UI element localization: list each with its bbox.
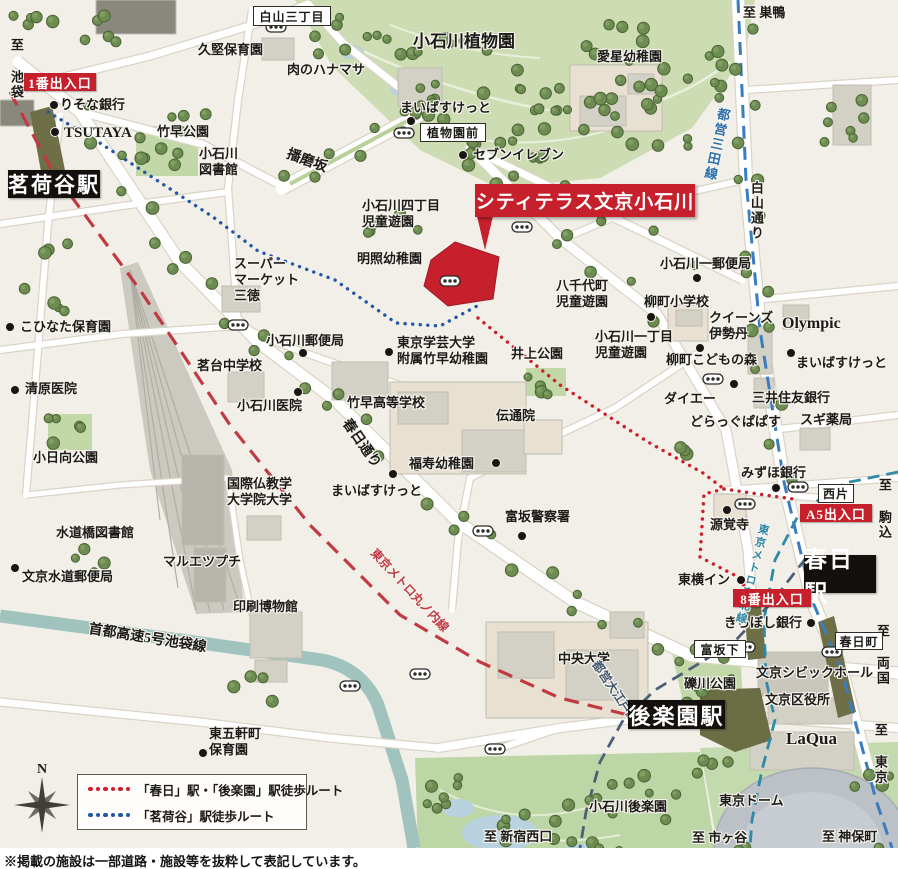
poi-dot (10, 385, 20, 395)
legend-box: 「春日」駅・「後楽園」駅徒歩ルート「茗荷谷」駅徒歩ルート (77, 774, 307, 830)
poi-label: 東五軒町 保育園 (209, 726, 261, 758)
compass-n: N (37, 762, 47, 777)
poi-dot (722, 505, 732, 515)
poi-label: 久堅保育園 (198, 42, 263, 58)
poi-label: 国際仏教学 大学院大学 (227, 476, 292, 508)
poi-label: 清原医院 (25, 381, 77, 397)
poi-dot (49, 100, 59, 110)
poi-label: 小石川一郵便局 (660, 256, 751, 272)
poi-dot (50, 127, 60, 137)
poi-label: 小石川医院 (237, 398, 302, 414)
poi-label: こひなた保育園 (20, 319, 111, 335)
edge-label: 至 東京 (872, 723, 888, 785)
poi-label: 文京シビックホール (756, 665, 873, 681)
poi-label: 東京ドーム (719, 793, 784, 809)
poi-label: どらっぐぱぱす (690, 414, 781, 430)
poi-dot (5, 322, 15, 332)
edge-label: 至 市ヶ谷 (692, 830, 747, 846)
poi-dot (298, 348, 308, 358)
poi-label: 小日向公園 (33, 450, 98, 466)
poi-label: 礫川公園 (684, 676, 736, 692)
poi-label: 文京水道郵便局 (22, 569, 113, 585)
bus-stop-sign: 白山三丁目 (253, 6, 331, 26)
poi-label: 水道橋図書館 (56, 525, 134, 541)
map-area: シティテラス文京小石川 「春日」駅・「後楽園」駅徒歩ルート「茗荷谷」駅徒歩ルート… (0, 0, 898, 848)
poi-label: みずほ銀行 (741, 465, 806, 481)
poi-label: マルエツプチ (163, 554, 241, 570)
poi-dot (384, 347, 394, 357)
poi-label: 文京区役所 (765, 692, 830, 708)
poi-label: 福寿幼稚園 (409, 456, 474, 472)
road-label: 白山通り (748, 181, 764, 241)
poi-dot (517, 531, 527, 541)
road-label: 春日通り (338, 416, 384, 472)
poi-label: スギ薬局 (800, 412, 852, 428)
poi-label: 小石川四丁目 児童遊園 (362, 198, 440, 230)
poi-label: LaQua (786, 729, 837, 750)
poi-label: 伝通院 (496, 408, 535, 424)
station-label: 茗荷谷駅 (8, 170, 100, 198)
poi-dot (806, 618, 816, 628)
poi-label: まいばすけっと (400, 100, 491, 116)
legend-item: 「春日」駅・「後楽園」駅徒歩ルート (88, 780, 296, 799)
poi-label: 茗台中学校 (197, 358, 262, 374)
edge-label: 至 神保町 (822, 829, 877, 845)
road-label: 東京メトロ丸ノ内線 (367, 546, 451, 635)
exit-label: A5出入口 (800, 504, 872, 522)
bus-stop-sign: 春日町 (835, 632, 883, 650)
exit-label: 8番出入口 (733, 589, 811, 607)
poi-dot (198, 748, 208, 758)
poi-label: 柳町小学校 (644, 294, 709, 310)
poi-label: りそな銀行 (60, 97, 125, 113)
poi-dot (406, 116, 416, 126)
compass: N (0, 757, 85, 848)
poi-label: 小石川郵便局 (266, 333, 344, 349)
poi-dot (491, 458, 501, 468)
poi-dot (458, 150, 468, 160)
edge-label: 至 巣鴨 (743, 5, 785, 21)
road-label: 播磨坂 (284, 146, 329, 176)
poi-dot (388, 469, 398, 479)
poi-label: Olympic (782, 314, 841, 334)
poi-label: 柳町こどもの森 (666, 352, 757, 368)
legend-route-swatch (88, 813, 130, 818)
poi-label: 明照幼稚園 (357, 251, 422, 267)
edge-label: 至 新宿西口 (484, 829, 552, 845)
footnote-text: ※掲載の施設は一部道路・施設等を抜粋して表記しています。 (4, 851, 366, 869)
poi-dot (695, 343, 705, 353)
poi-label: 竹早高等学校 (347, 395, 425, 411)
legend-route-swatch (88, 787, 130, 792)
bus-stop-sign: 富坂下 (694, 640, 746, 658)
station-label: 春日駅 (804, 555, 876, 593)
poi-label: 竹早公園 (157, 124, 209, 140)
poi-label: 小石川 図書館 (199, 146, 238, 178)
poi-dot (10, 563, 20, 573)
poi-label: クイーンズ 伊勢丹 (709, 310, 773, 342)
poi-label: 井上公園 (511, 346, 563, 362)
poi-label: TSUTAYA (64, 124, 132, 142)
poi-label: まいばすけっと (331, 483, 422, 499)
legend-label: 「茗荷谷」駅徒歩ルート (137, 806, 275, 825)
poi-label: 小石川後楽園 (589, 799, 667, 815)
poi-label: 東横イン (678, 572, 730, 588)
poi-dot (771, 483, 781, 493)
exit-label: 1番出入口 (24, 73, 96, 91)
legend-item: 「茗荷谷」駅徒歩ルート (88, 806, 296, 825)
road-label: 東京メトロ南北線 (732, 522, 770, 626)
station-label: 後楽園駅 (628, 700, 725, 729)
poi-label: 小石川一丁目 児童遊園 (595, 329, 673, 361)
bus-stop-sign: 植物園前 (420, 123, 486, 142)
bus-stop-sign: 西片 (818, 484, 854, 503)
poi-dot (692, 273, 702, 283)
poi-dot (786, 348, 796, 358)
poi-dot (729, 379, 739, 389)
poi-label: 富坂警察署 (505, 509, 570, 525)
poi-label: 東京学芸大学 附属竹早幼稚園 (397, 335, 488, 367)
map-screenshot: シティテラス文京小石川 「春日」駅・「後楽園」駅徒歩ルート「茗荷谷」駅徒歩ルート… (0, 0, 898, 869)
edge-label: 至 駒込 (876, 478, 892, 540)
road-label: 都営三田線 (700, 106, 731, 183)
poi-label: セブンイレブン (473, 147, 564, 163)
poi-label: スーパー マーケット 三徳 (234, 256, 299, 304)
poi-label: 小石川植物園 (413, 32, 515, 53)
legend-label: 「春日」駅・「後楽園」駅徒歩ルート (137, 780, 343, 799)
poi-label: まいばすけっと (796, 355, 887, 371)
poi-label: 三井住友銀行 (752, 390, 830, 406)
poi-label: 印刷博物館 (233, 599, 298, 615)
edge-label: 至 池袋 (8, 38, 24, 100)
poi-dot (646, 312, 656, 322)
poi-label: 八千代町 児童遊園 (556, 278, 608, 310)
road-label: 首都高速5号池袋線 (87, 621, 207, 656)
labels-layer: シティテラス文京小石川 「春日」駅・「後楽園」駅徒歩ルート「茗荷谷」駅徒歩ルート… (0, 0, 898, 848)
poi-label: 愛星幼稚園 (597, 49, 662, 65)
poi-label: 肉のハナマサ (287, 62, 365, 78)
poi-label: ダイエー (664, 391, 716, 407)
poi-dot (293, 387, 303, 397)
property-banner: シティテラス文京小石川 (475, 184, 695, 217)
poi-label: 源覚寺 (710, 517, 749, 533)
